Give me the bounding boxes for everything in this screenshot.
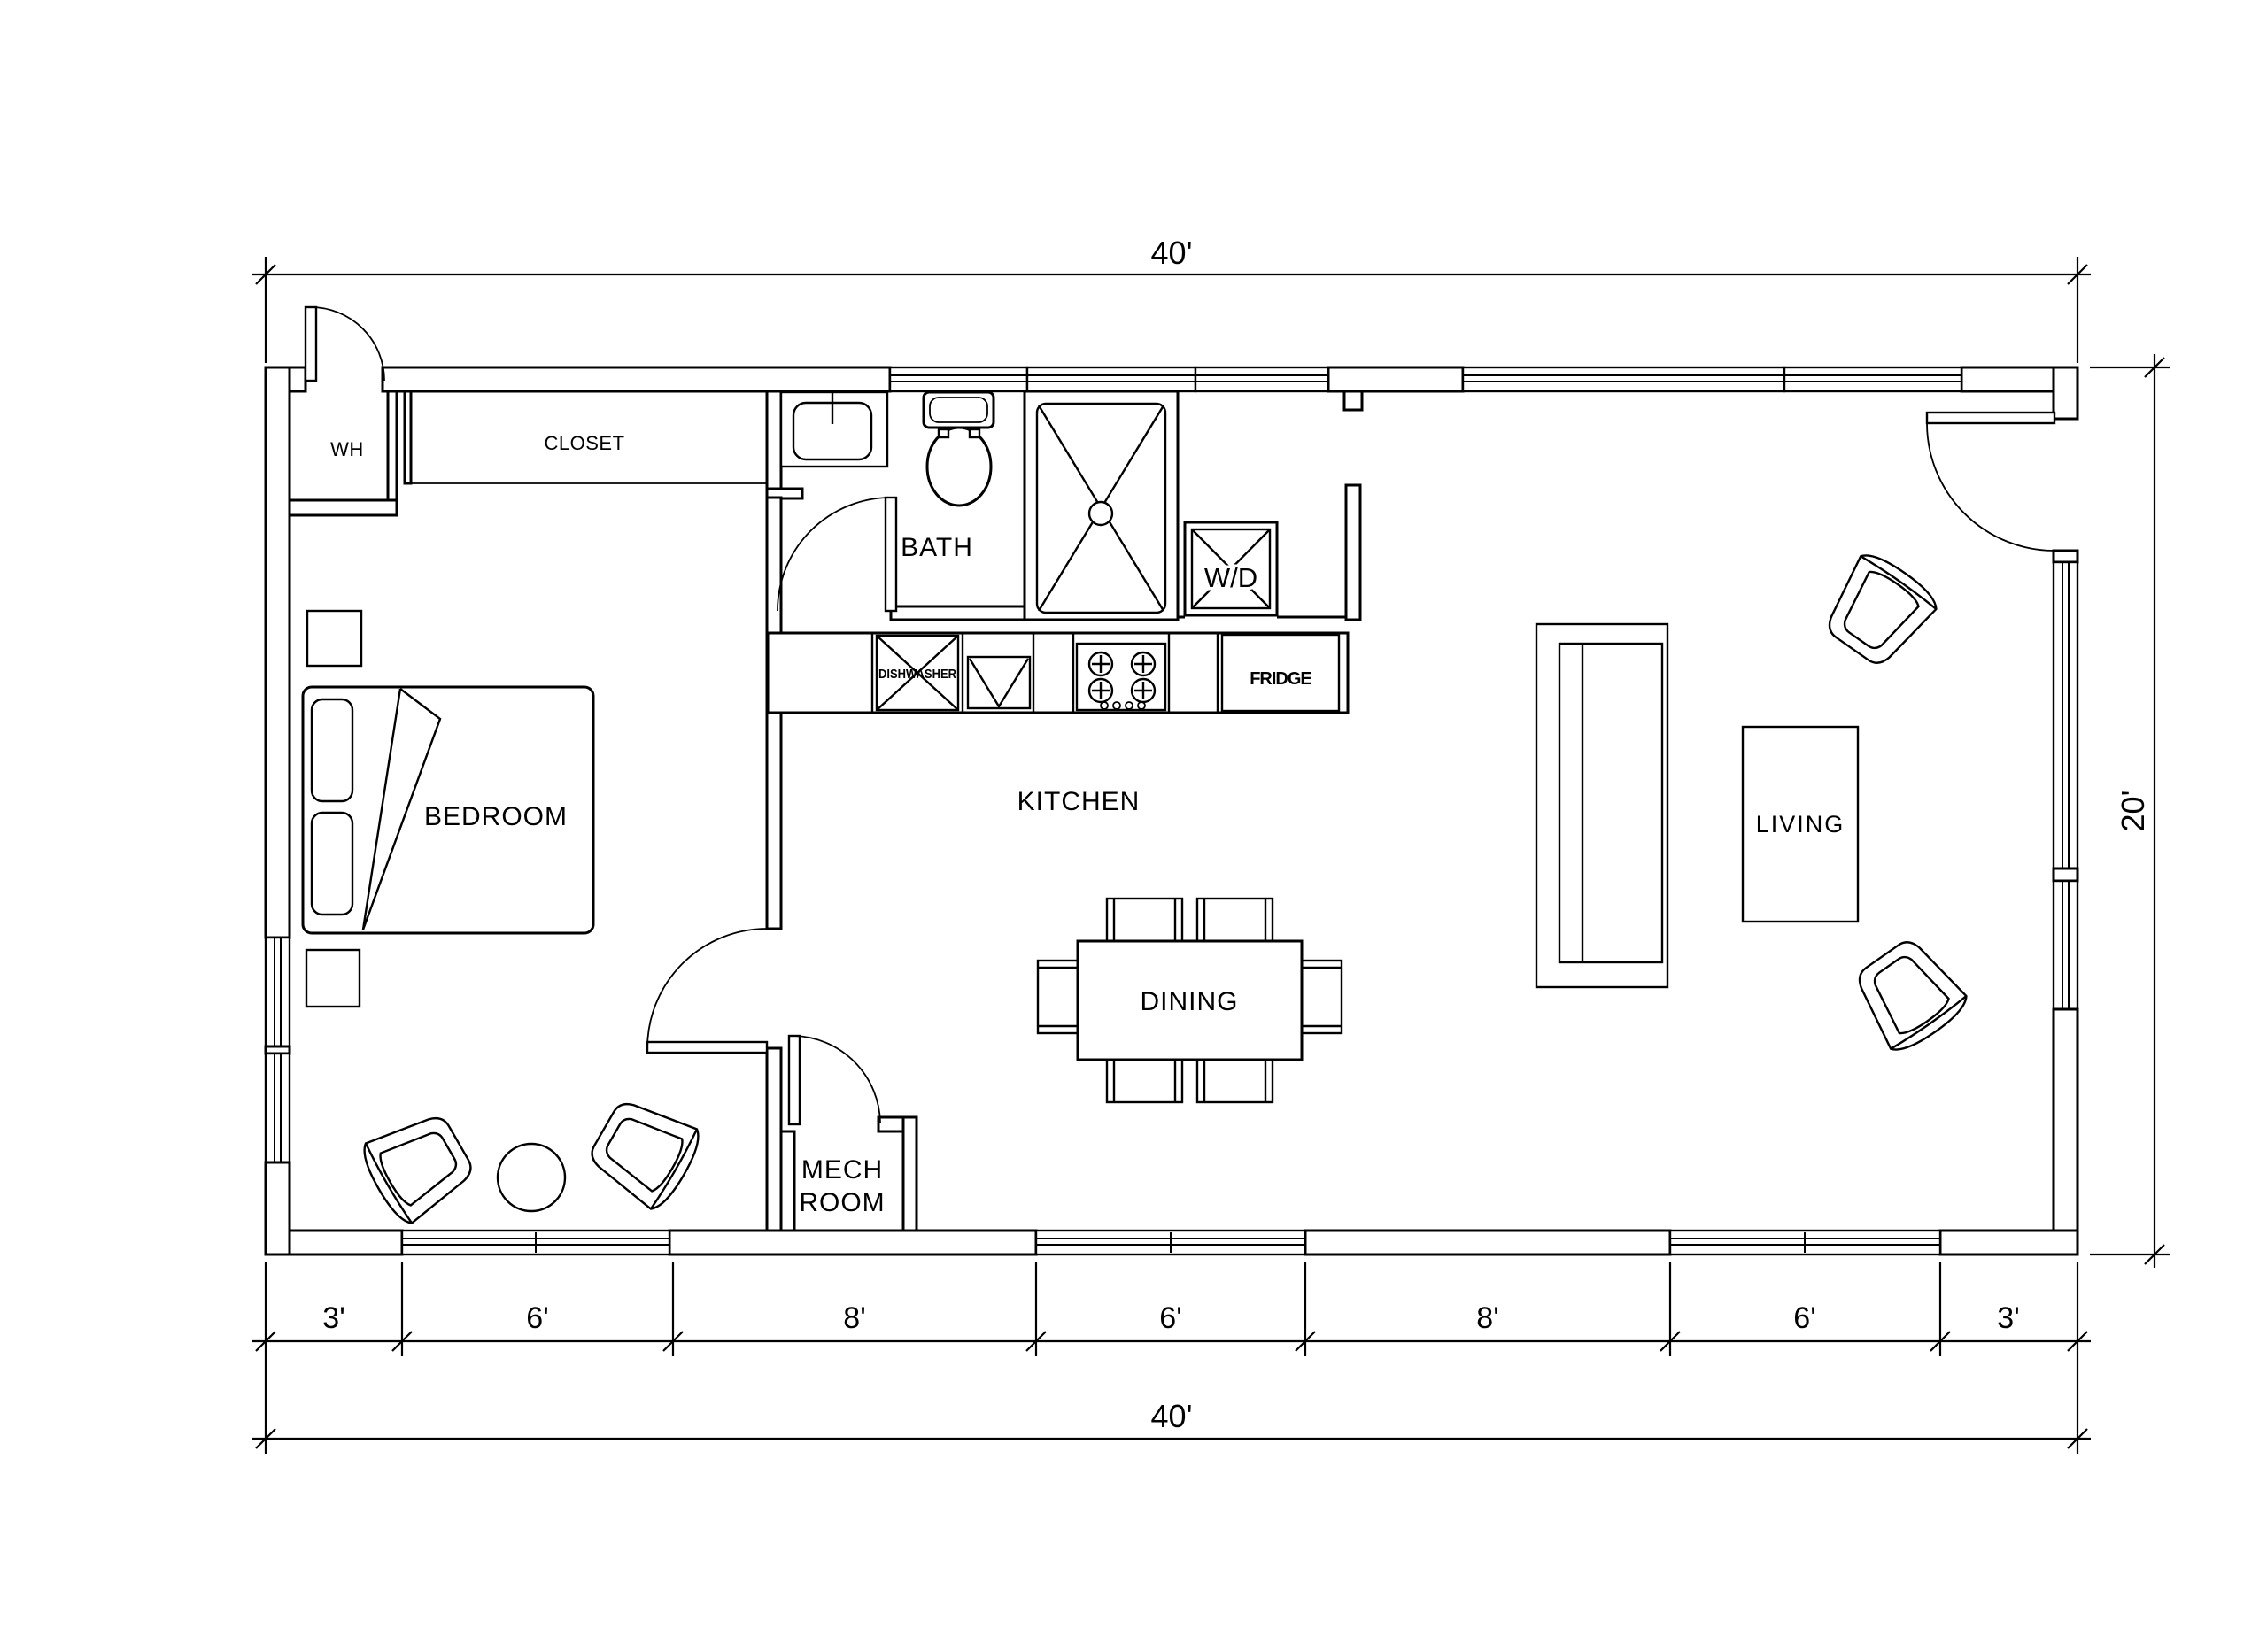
dim-seg-2: 6' bbox=[526, 1301, 548, 1335]
mech-room-label-line2: ROOM bbox=[799, 1188, 885, 1217]
bedroom-hall-wall bbox=[767, 1048, 781, 1231]
living-armchair-bottom bbox=[1845, 930, 1973, 1058]
kitchen-bath-wall bbox=[891, 606, 1025, 620]
right-windows bbox=[2054, 562, 2077, 1009]
entry-door bbox=[1927, 413, 2054, 551]
nightstand-bottom bbox=[306, 950, 360, 1007]
dining-chair-bottom-2 bbox=[1197, 1060, 1273, 1102]
closet-left-wall bbox=[405, 391, 411, 483]
stove bbox=[1077, 644, 1165, 710]
washer-dryer: W/D bbox=[1185, 522, 1277, 615]
bath-left-wall bbox=[767, 391, 781, 498]
living-furniture bbox=[1536, 547, 1973, 1059]
dishwasher: DISHWASHER bbox=[877, 636, 958, 710]
mech-right-wall bbox=[903, 1117, 917, 1231]
dining-chair-right bbox=[1302, 961, 1342, 1033]
dining-chair-left bbox=[1038, 961, 1078, 1033]
bath-sink bbox=[781, 390, 887, 467]
dim-seg-1: 3' bbox=[322, 1301, 344, 1335]
bedroom-door bbox=[647, 929, 767, 1053]
bath-fixtures: W/D bbox=[781, 390, 1277, 620]
dining-chair-top-2 bbox=[1197, 899, 1273, 941]
fridge-label: FRIDGE bbox=[1250, 669, 1311, 689]
left-windows bbox=[266, 938, 290, 1162]
pillow-top bbox=[312, 699, 352, 801]
bedroom-armchair-right bbox=[581, 1089, 707, 1215]
dim-top-overall: 40' bbox=[252, 235, 2091, 363]
kitchen-label: KITCHEN bbox=[1017, 787, 1141, 816]
kitchen-sink bbox=[968, 657, 1030, 708]
dim-bottom-segments: 3' 6' 8' 6' 8' 6' 3' bbox=[252, 1262, 2091, 1356]
dim-seg-5: 8' bbox=[1476, 1301, 1498, 1335]
dining-chair-top-1 bbox=[1107, 899, 1182, 941]
washer-dryer-label: W/D bbox=[1204, 562, 1257, 593]
pillow-bottom bbox=[312, 813, 352, 915]
nightstand-top bbox=[307, 611, 361, 666]
kitchen-counter: DISHWASHER FRIDGE bbox=[768, 633, 1348, 713]
living-label: LIVING bbox=[1756, 811, 1845, 838]
mech-room-door bbox=[789, 1036, 880, 1124]
closet-label: CLOSET bbox=[544, 432, 624, 454]
wh-label: WH bbox=[330, 438, 364, 460]
wh-bottom-wall bbox=[290, 500, 397, 515]
mech-left-wall bbox=[781, 1131, 794, 1231]
dining-chair-bottom-1 bbox=[1107, 1060, 1182, 1102]
dim-top-overall-value: 40' bbox=[1151, 235, 1193, 271]
shower bbox=[1025, 391, 1178, 620]
dim-seg-7: 3' bbox=[1997, 1301, 2019, 1335]
wh-right-wall bbox=[388, 391, 397, 515]
dim-right-overall: 20' bbox=[2090, 354, 2170, 1268]
floor-plan-page: W/D DISHWASHER bbox=[0, 0, 2267, 1652]
dim-bottom-overall: 40' bbox=[252, 1262, 2091, 1454]
bedroom-armchair-left bbox=[356, 1103, 482, 1229]
bedroom-label: BEDROOM bbox=[424, 802, 568, 831]
bedroom-furniture bbox=[303, 611, 707, 1229]
dim-bottom-overall-value: 40' bbox=[1151, 1398, 1193, 1434]
wh-exterior-door bbox=[306, 307, 384, 381]
dim-right-overall-value: 20' bbox=[2115, 791, 2151, 832]
living-divider-wall bbox=[1346, 485, 1360, 620]
living-divider-stub bbox=[1344, 391, 1362, 410]
bedroom-side-table bbox=[498, 1144, 565, 1211]
dim-seg-4: 6' bbox=[1159, 1301, 1181, 1335]
bath-label: BATH bbox=[901, 533, 973, 562]
living-armchair-top bbox=[1814, 547, 1943, 675]
dim-seg-6: 6' bbox=[1793, 1301, 1815, 1335]
sofa bbox=[1536, 624, 1667, 987]
dining-label: DINING bbox=[1141, 987, 1239, 1016]
floor-plan-drawing: W/D DISHWASHER bbox=[0, 0, 2267, 1652]
dishwasher-label: DISHWASHER bbox=[878, 667, 956, 682]
bath-door bbox=[778, 498, 896, 611]
toilet bbox=[924, 392, 994, 506]
bottom-windows bbox=[402, 1231, 1940, 1254]
fridge: FRIDGE bbox=[1222, 635, 1339, 711]
mech-room-label-line1: MECH bbox=[801, 1155, 883, 1185]
dim-seg-3: 8' bbox=[843, 1301, 865, 1335]
